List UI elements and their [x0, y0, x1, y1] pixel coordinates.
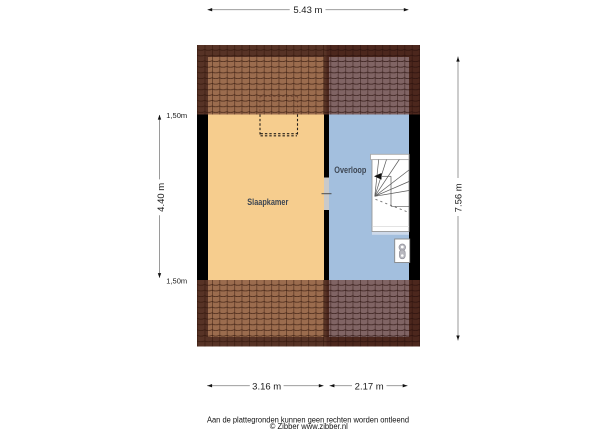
- svg-text:3.16 m: 3.16 m: [252, 381, 281, 392]
- svg-text:Slaapkamer: Slaapkamer: [247, 197, 288, 208]
- svg-text:7.56 m: 7.56 m: [453, 183, 464, 212]
- svg-text:2.17 m: 2.17 m: [355, 381, 384, 392]
- svg-text:5.43 m: 5.43 m: [293, 5, 322, 16]
- svg-text:4.40 m: 4.40 m: [156, 183, 167, 212]
- svg-text:1,50m: 1,50m: [166, 277, 187, 286]
- svg-text:© Zibber www.zibber.nl: © Zibber www.zibber.nl: [270, 422, 348, 431]
- svg-text:1,50m: 1,50m: [166, 111, 187, 120]
- svg-text:Overloop: Overloop: [334, 165, 366, 176]
